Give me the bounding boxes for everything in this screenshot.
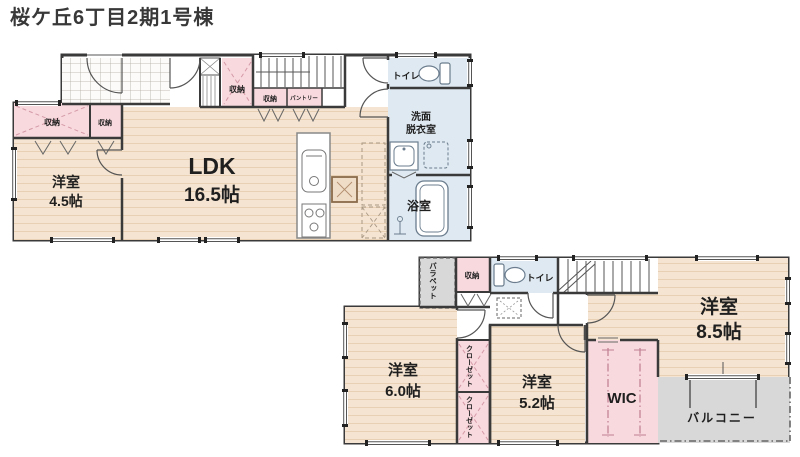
attic-hatch — [497, 298, 521, 318]
youshitsu52-size-label: 5.2帖 — [519, 394, 555, 412]
storage-b-label: 収納 — [98, 118, 112, 127]
shoe-cabinet — [200, 58, 220, 107]
vanity-sink-icon — [390, 142, 418, 170]
closet-upper-box — [457, 340, 490, 392]
floor-plan-page: 桜ケ丘6丁目2期1号棟 — [0, 0, 800, 457]
ldk-size-label: 16.5帖 — [184, 183, 240, 206]
pantry-label: パントリー — [290, 94, 318, 102]
page-title: 桜ケ丘6丁目2期1号棟 — [10, 5, 214, 29]
dining-table — [332, 177, 357, 202]
kitchen-counter — [297, 133, 330, 238]
storage-understair-label: 収納 — [263, 94, 277, 103]
floor1-plan: LDK 16.5帖 洋室 4.5帖 収納 収納 収納 収納 パントリー トイレ … — [11, 52, 473, 243]
youshitsu45-label: 洋室 — [52, 174, 80, 190]
ldk-label: LDK — [188, 153, 236, 179]
parapet-label: パラペット — [428, 261, 437, 300]
youshitsu60-size-label: 6.0帖 — [385, 382, 421, 400]
bathroom-label: 浴室 — [407, 198, 431, 213]
youshitsu85-size-label: 8.5帖 — [696, 320, 741, 343]
room-ldk — [122, 107, 388, 240]
parapet-area — [420, 258, 455, 308]
balcony-area — [658, 377, 790, 443]
toilet-1f-label: トイレ — [392, 71, 419, 81]
balcony-label: バルコニー — [687, 411, 757, 425]
genkan-area — [62, 58, 170, 104]
closet-lower-label: クローゼット — [466, 396, 474, 438]
stove — [302, 204, 326, 237]
washroom-label-line2: 脱衣室 — [406, 123, 436, 136]
youshitsu45-size-label: 4.5帖 — [49, 193, 82, 209]
youshitsu60-label: 洋室 — [388, 361, 418, 379]
staircase-2f — [558, 258, 658, 293]
storage-a-label: 収納 — [44, 117, 60, 127]
floor-plan-canvas: 桜ケ丘6丁目2期1号棟 — [0, 0, 800, 457]
storage-hall-label: 収納 — [229, 84, 245, 94]
youshitsu52-label: 洋室 — [522, 373, 552, 391]
storage-2f-label: 収納 — [465, 270, 480, 280]
closet-lower-box — [457, 392, 490, 443]
wic-label: WIC — [607, 390, 636, 407]
toilet-2f-label: トイレ — [526, 273, 553, 283]
closet-upper-label: クローゼット — [466, 345, 474, 387]
staircase-1f — [253, 55, 345, 88]
washroom-label-line1: 洗面 — [411, 110, 431, 123]
floor2-plan: 洋室 8.5帖 洋室 6.0帖 洋室 5.2帖 WIC バルコニー トイレ 収納… — [342, 255, 791, 446]
youshitsu85-label: 洋室 — [700, 295, 738, 318]
